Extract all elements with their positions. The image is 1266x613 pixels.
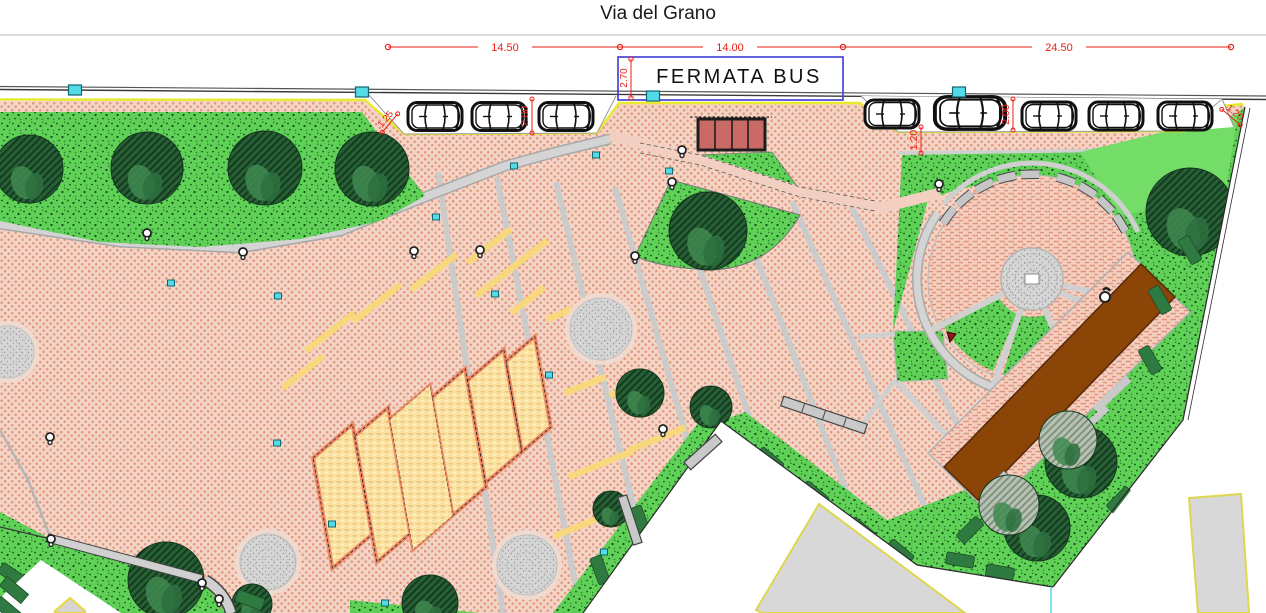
svg-text:Via del Grano: Via del Grano	[600, 3, 716, 24]
svg-text:2.00: 2.00	[519, 106, 531, 127]
svg-text:2.70: 2.70	[619, 68, 630, 88]
svg-text:1.20: 1.20	[908, 130, 920, 151]
svg-text:14.00: 14.00	[716, 42, 744, 54]
svg-text:24.50: 24.50	[1045, 42, 1073, 54]
svg-text:2.00: 2.00	[1000, 104, 1012, 125]
svg-text:14.50: 14.50	[491, 42, 519, 54]
svg-text:FERMATA BUS: FERMATA BUS	[656, 66, 822, 88]
